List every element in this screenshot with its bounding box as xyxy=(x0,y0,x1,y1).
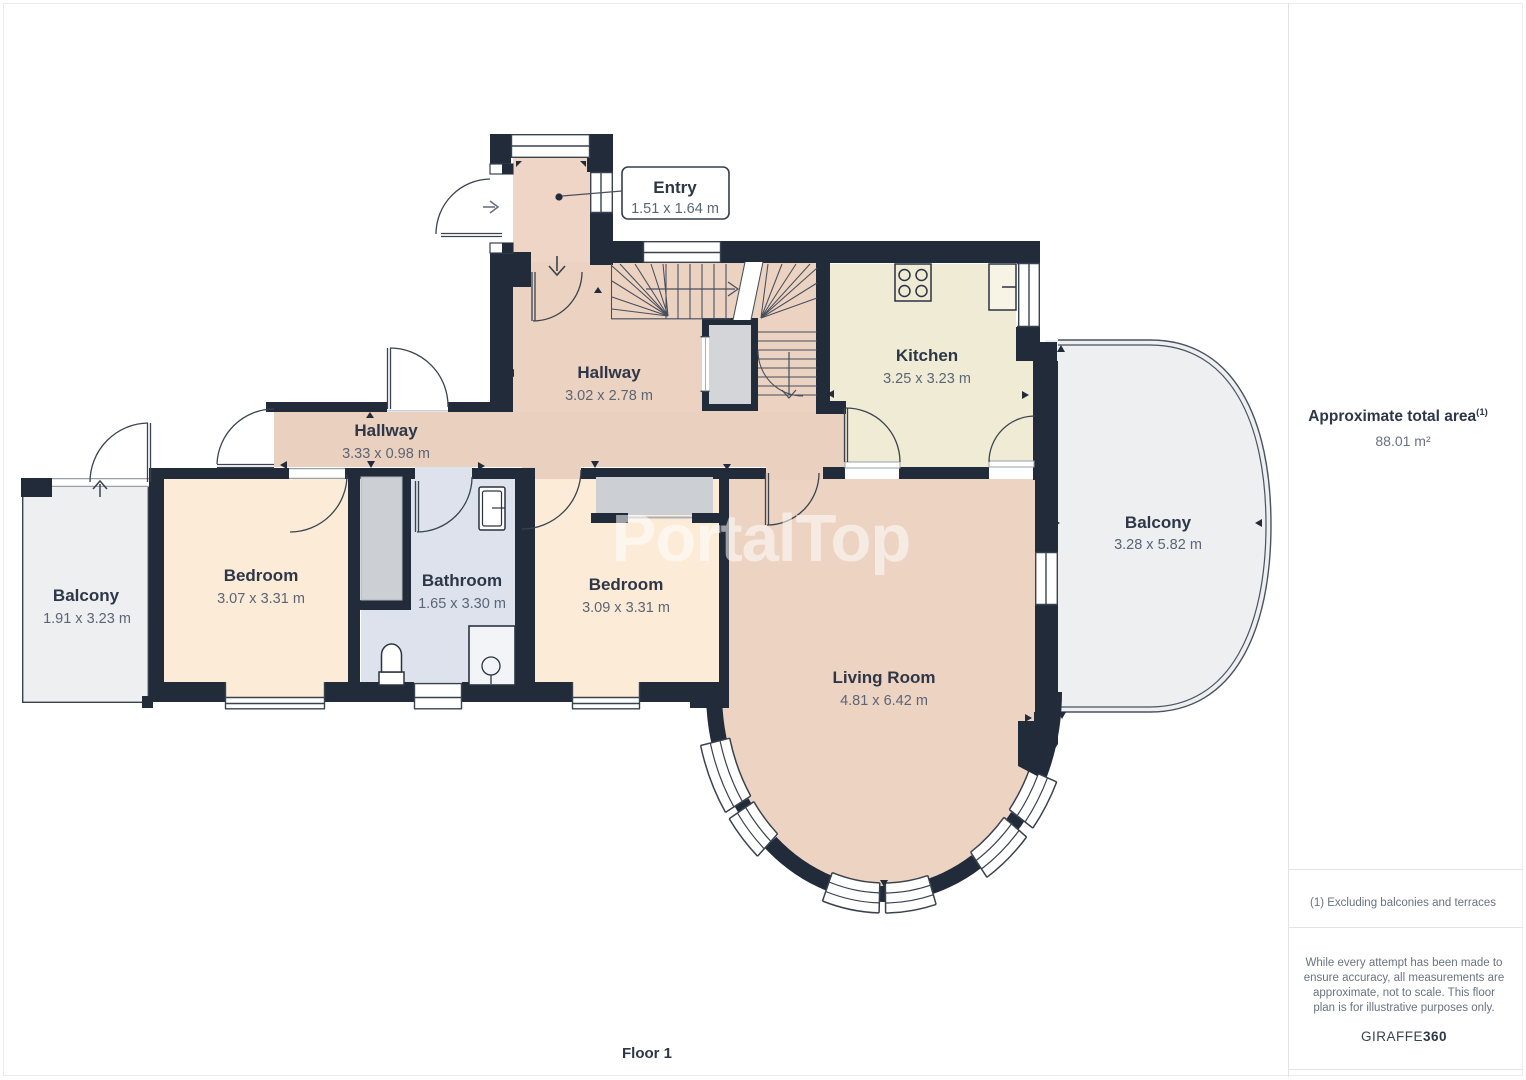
svg-text:Entry: Entry xyxy=(653,178,697,197)
svg-text:Kitchen: Kitchen xyxy=(896,346,958,365)
svg-text:3.02 x 2.78 m: 3.02 x 2.78 m xyxy=(565,388,653,404)
svg-text:GIRAFFE360: GIRAFFE360 xyxy=(1361,1029,1447,1044)
svg-text:3.09 x 3.31 m: 3.09 x 3.31 m xyxy=(582,600,670,616)
svg-text:Balcony: Balcony xyxy=(53,586,120,605)
svg-text:4.81 x 6.42 m: 4.81 x 6.42 m xyxy=(840,693,928,709)
svg-text:Balcony: Balcony xyxy=(1125,513,1192,532)
svg-text:PortalTop: PortalTop xyxy=(612,501,911,576)
svg-text:approximate, not to scale. Thi: approximate, not to scale. This floor xyxy=(1313,987,1495,999)
svg-text:1.91 x 3.23 m: 1.91 x 3.23 m xyxy=(43,611,131,627)
svg-text:3.07 x 3.31 m: 3.07 x 3.31 m xyxy=(217,591,305,607)
svg-text:3.33 x 0.98 m: 3.33 x 0.98 m xyxy=(342,446,430,462)
svg-text:Bathroom: Bathroom xyxy=(422,571,502,590)
svg-text:Living Room: Living Room xyxy=(833,668,936,687)
svg-text:Hallway: Hallway xyxy=(577,363,641,382)
svg-text:Bedroom: Bedroom xyxy=(224,566,299,585)
svg-text:ensure accuracy, all measureme: ensure accuracy, all measurements are xyxy=(1304,972,1505,984)
svg-text:1.65 x 3.30 m: 1.65 x 3.30 m xyxy=(418,596,506,612)
svg-text:While every attempt has been m: While every attempt has been made to xyxy=(1306,957,1503,969)
svg-text:Floor 1: Floor 1 xyxy=(622,1045,672,1062)
svg-text:plan is for illustrative purpo: plan is for illustrative purposes only. xyxy=(1313,1002,1494,1014)
svg-text:Bedroom: Bedroom xyxy=(589,575,664,594)
svg-text:(1) Excluding balconies and te: (1) Excluding balconies and terraces xyxy=(1310,897,1496,909)
svg-text:1.51 x 1.64 m: 1.51 x 1.64 m xyxy=(631,201,719,217)
svg-text:88.01 m²: 88.01 m² xyxy=(1375,433,1431,449)
svg-text:Hallway: Hallway xyxy=(354,421,418,440)
svg-text:3.25 x 3.23 m: 3.25 x 3.23 m xyxy=(883,371,971,387)
svg-text:Approximate total area(1): Approximate total area(1) xyxy=(1308,407,1488,425)
svg-text:3.28 x 5.82 m: 3.28 x 5.82 m xyxy=(1114,537,1202,553)
